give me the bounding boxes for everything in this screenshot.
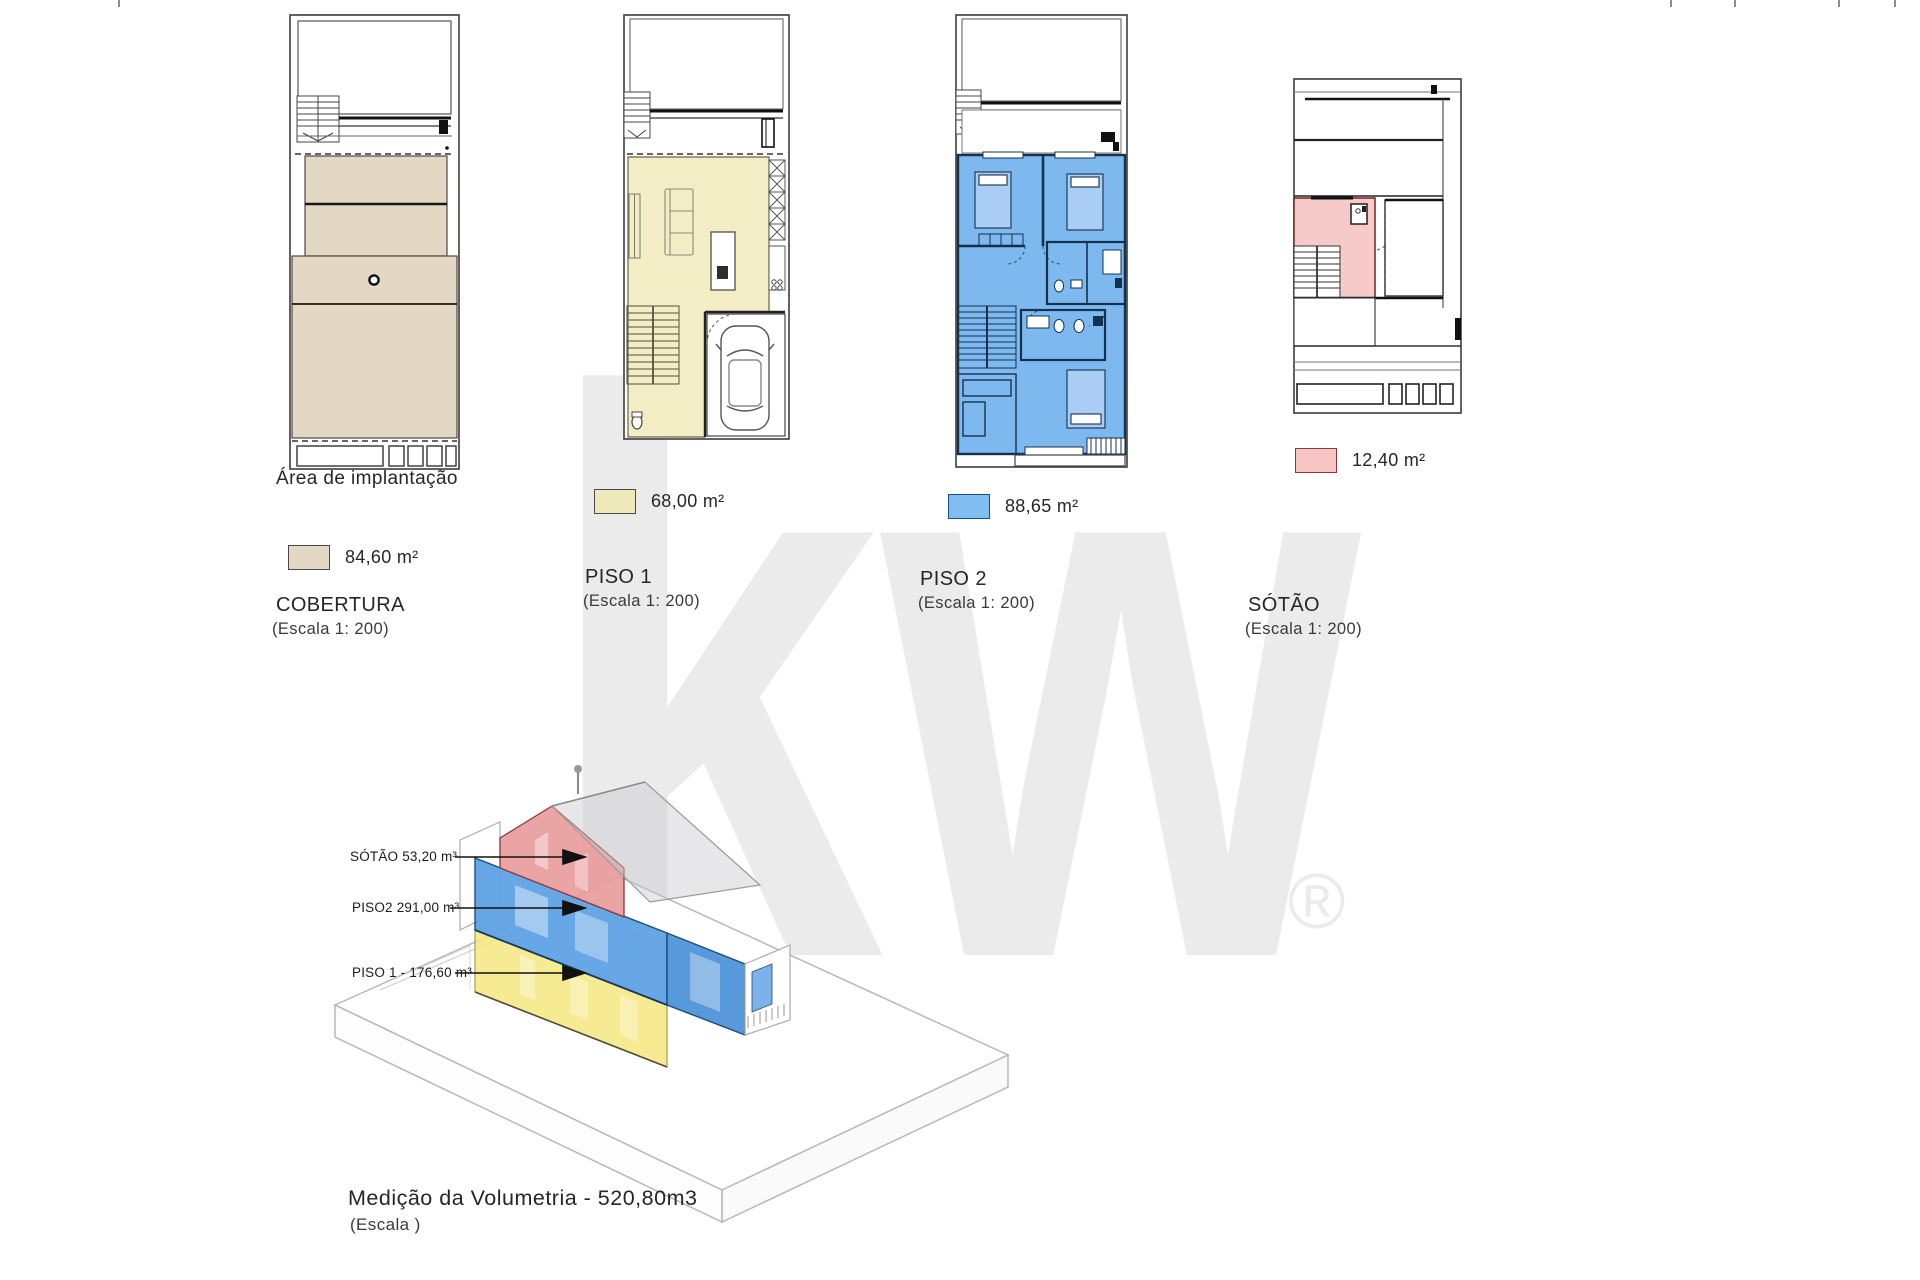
piso1-plan-drawing — [623, 14, 790, 440]
entry-fixture — [762, 119, 774, 147]
legend-cobertura: 84,60 m² — [288, 545, 418, 570]
cobertura-swatch — [288, 545, 330, 570]
skylight-row — [1297, 384, 1453, 404]
shelving-strip — [769, 160, 785, 240]
legend-piso2: 88,65 m² — [948, 494, 1078, 519]
sink-icon — [717, 266, 728, 279]
kitchen-counter — [769, 246, 785, 290]
piso1-area-value: 68,00 m² — [651, 491, 724, 512]
terrace-band — [962, 110, 1121, 153]
bed-icon — [975, 172, 1011, 228]
axonometric-drawing — [320, 760, 1010, 1230]
volumetria-caption: Medição da Volumetria - 520,80m3 — [348, 1186, 697, 1211]
cobertura-scale: (Escala 1: 200) — [272, 620, 389, 639]
sotao-area-value: 12,40 m² — [1352, 450, 1425, 471]
kitchen-island — [711, 232, 735, 290]
sotao-volume-label: SÓTÃO 53,20 m³ — [350, 849, 457, 864]
legend-sotao: 12,40 m² — [1295, 448, 1425, 473]
site-slab — [335, 877, 1008, 1222]
piso2-area-value: 88,65 m² — [1005, 496, 1078, 517]
stairs-icon — [297, 96, 339, 142]
bed-icon — [1067, 370, 1105, 428]
stairs-icon — [1294, 246, 1340, 298]
stairs-icon — [624, 92, 650, 138]
volumetria-scale: (Escala ) — [350, 1215, 421, 1235]
balcony-hatch — [1087, 438, 1125, 454]
skylight-row — [297, 446, 456, 466]
bed-icon — [1067, 174, 1103, 230]
piso1-scale: (Escala 1: 200) — [583, 592, 700, 611]
sotao-scale: (Escala 1: 200) — [1245, 620, 1362, 639]
area-implantacao-label: Área de implantação — [276, 468, 458, 490]
piso2-swatch — [948, 494, 990, 519]
sotao-title: SÓTÃO — [1248, 594, 1320, 617]
sotao-plan-drawing — [1293, 78, 1462, 414]
cobertura-area-value: 84,60 m² — [345, 547, 418, 568]
piso1-volume-label: PISO 1 - 176,60 m³ — [352, 965, 472, 980]
sotao-swatch — [1295, 448, 1337, 473]
plan-sheet: kw ® — [0, 0, 1920, 1280]
legend-piso1: 68,00 m² — [594, 489, 724, 514]
piso2-scale: (Escala 1: 200) — [918, 594, 1035, 613]
piso1-title: PISO 1 — [585, 566, 652, 589]
cobertura-title: COBERTURA — [276, 594, 405, 617]
car-icon — [716, 326, 774, 430]
piso2-volume-label: PISO2 291,00 m³ — [352, 900, 459, 915]
piso1-swatch — [594, 489, 636, 514]
cobertura-plan-drawing — [289, 14, 460, 470]
registered-mark-icon: ® — [1288, 857, 1345, 945]
roof-vent-icon — [369, 275, 378, 284]
piso2-title: PISO 2 — [920, 568, 987, 591]
piso2-plan-drawing — [955, 14, 1128, 468]
